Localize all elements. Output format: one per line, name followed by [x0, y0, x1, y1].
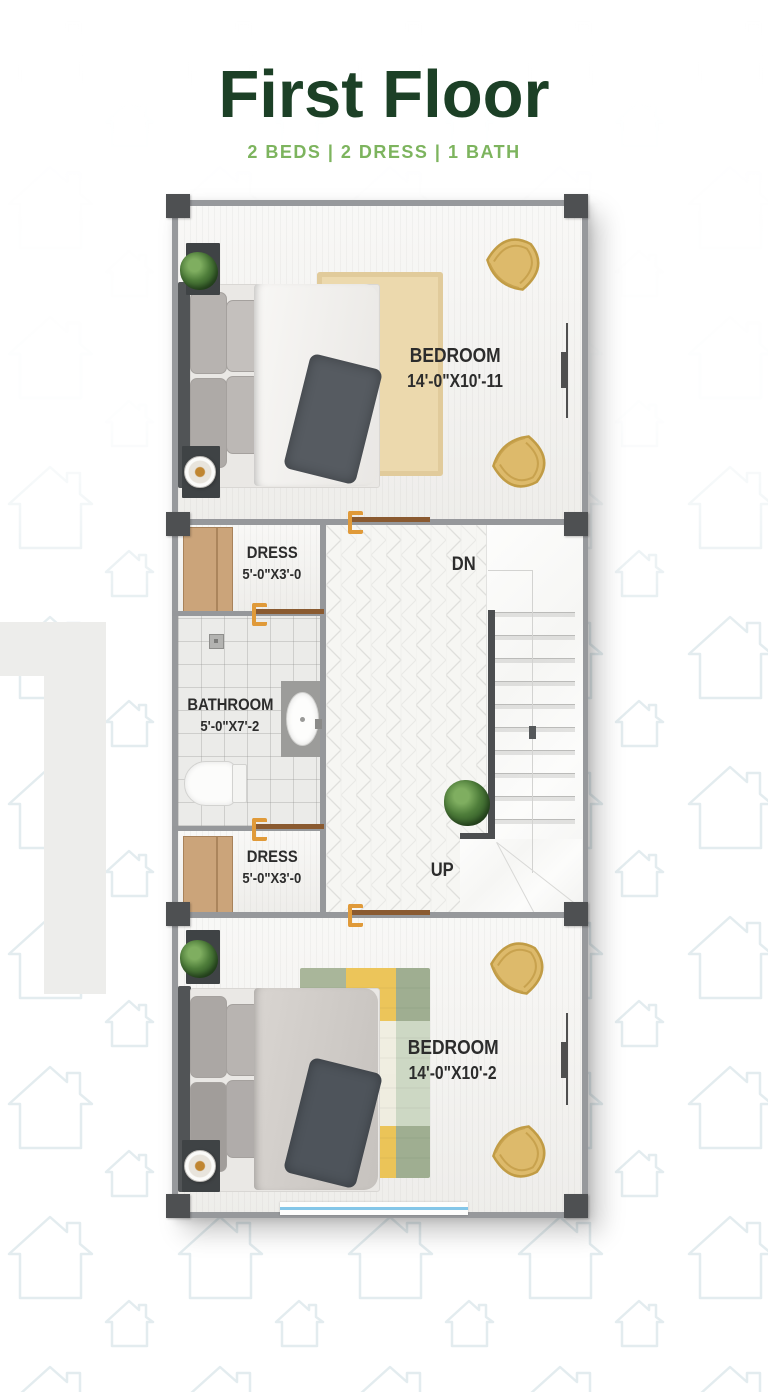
staircase-direction-marker: [529, 726, 536, 739]
table-lamp-icon: [184, 456, 216, 488]
column: [166, 1194, 190, 1218]
pillow: [190, 292, 227, 374]
shower-drain-icon: [209, 634, 224, 649]
door-pull-icon: [348, 904, 363, 927]
door-pull-icon: [252, 818, 267, 841]
page-title: First Floor: [0, 56, 768, 133]
staircase-center-line: [532, 570, 533, 873]
toilet-tank: [232, 764, 247, 803]
door-hallway-bottom: [352, 910, 430, 915]
column: [166, 512, 190, 536]
room-name: DRESS: [247, 542, 298, 564]
staircase-landing-line: [488, 570, 532, 571]
page-subtitle: 2 BEDS | 2 DRESS | 1 BATH: [0, 142, 768, 163]
room-dimensions: 14'-0"X10'-2: [409, 1061, 497, 1085]
column: [564, 194, 588, 218]
column: [564, 1194, 588, 1218]
faucet-icon: [315, 719, 322, 729]
plant-icon: [180, 252, 218, 290]
column: [166, 194, 190, 218]
window-marker: [561, 1042, 566, 1078]
plant-icon: [180, 940, 218, 978]
floor-plan-page: First Floor 2 BEDS | 2 DRESS | 1 BATH: [0, 0, 768, 1392]
window-marker: [566, 1013, 568, 1105]
window-marker: [566, 323, 568, 418]
column: [564, 512, 588, 536]
room-dimensions: 5'-0"X7'-2: [201, 716, 260, 737]
table-lamp-icon: [184, 1150, 216, 1182]
pillow: [190, 996, 227, 1078]
staircase-treads: [495, 612, 575, 833]
bathroom-label: BATHROOM 5'-0"X7'-2: [168, 694, 292, 737]
room-name: BATHROOM: [187, 694, 273, 716]
room-dimensions: 5'-0"X3'-0: [243, 868, 302, 889]
door-hallway-top: [352, 517, 430, 522]
door-pull-icon: [252, 603, 267, 626]
room-name: BEDROOM: [410, 344, 501, 369]
window-marker: [561, 352, 566, 388]
stair-well-wall-horizontal: [460, 833, 495, 839]
bedroom-bottom-label: BEDROOM 14'-0"X10'-2: [368, 1036, 538, 1085]
stairs-up-label: UP: [416, 860, 468, 882]
room-name: BEDROOM: [408, 1036, 499, 1061]
column: [166, 902, 190, 926]
door-pull-icon: [348, 511, 363, 534]
column: [564, 902, 588, 926]
bedroom-top-label: BEDROOM 14'-0"X10'-11: [370, 344, 540, 393]
room-dimensions: 5'-0"X3'-0: [243, 564, 302, 585]
toilet-icon: [184, 761, 236, 806]
stairs-down-label: DN: [438, 554, 490, 576]
dress-bottom-label: DRESS 5'-0"X3'-0: [210, 846, 334, 889]
plant-icon: [444, 780, 490, 826]
dress-top-label: DRESS 5'-0"X3'-0: [210, 542, 334, 585]
window-glass-line: [280, 1207, 468, 1210]
room-name: DRESS: [247, 846, 298, 868]
room-dimensions: 14'-0"X10'-11: [407, 369, 503, 393]
